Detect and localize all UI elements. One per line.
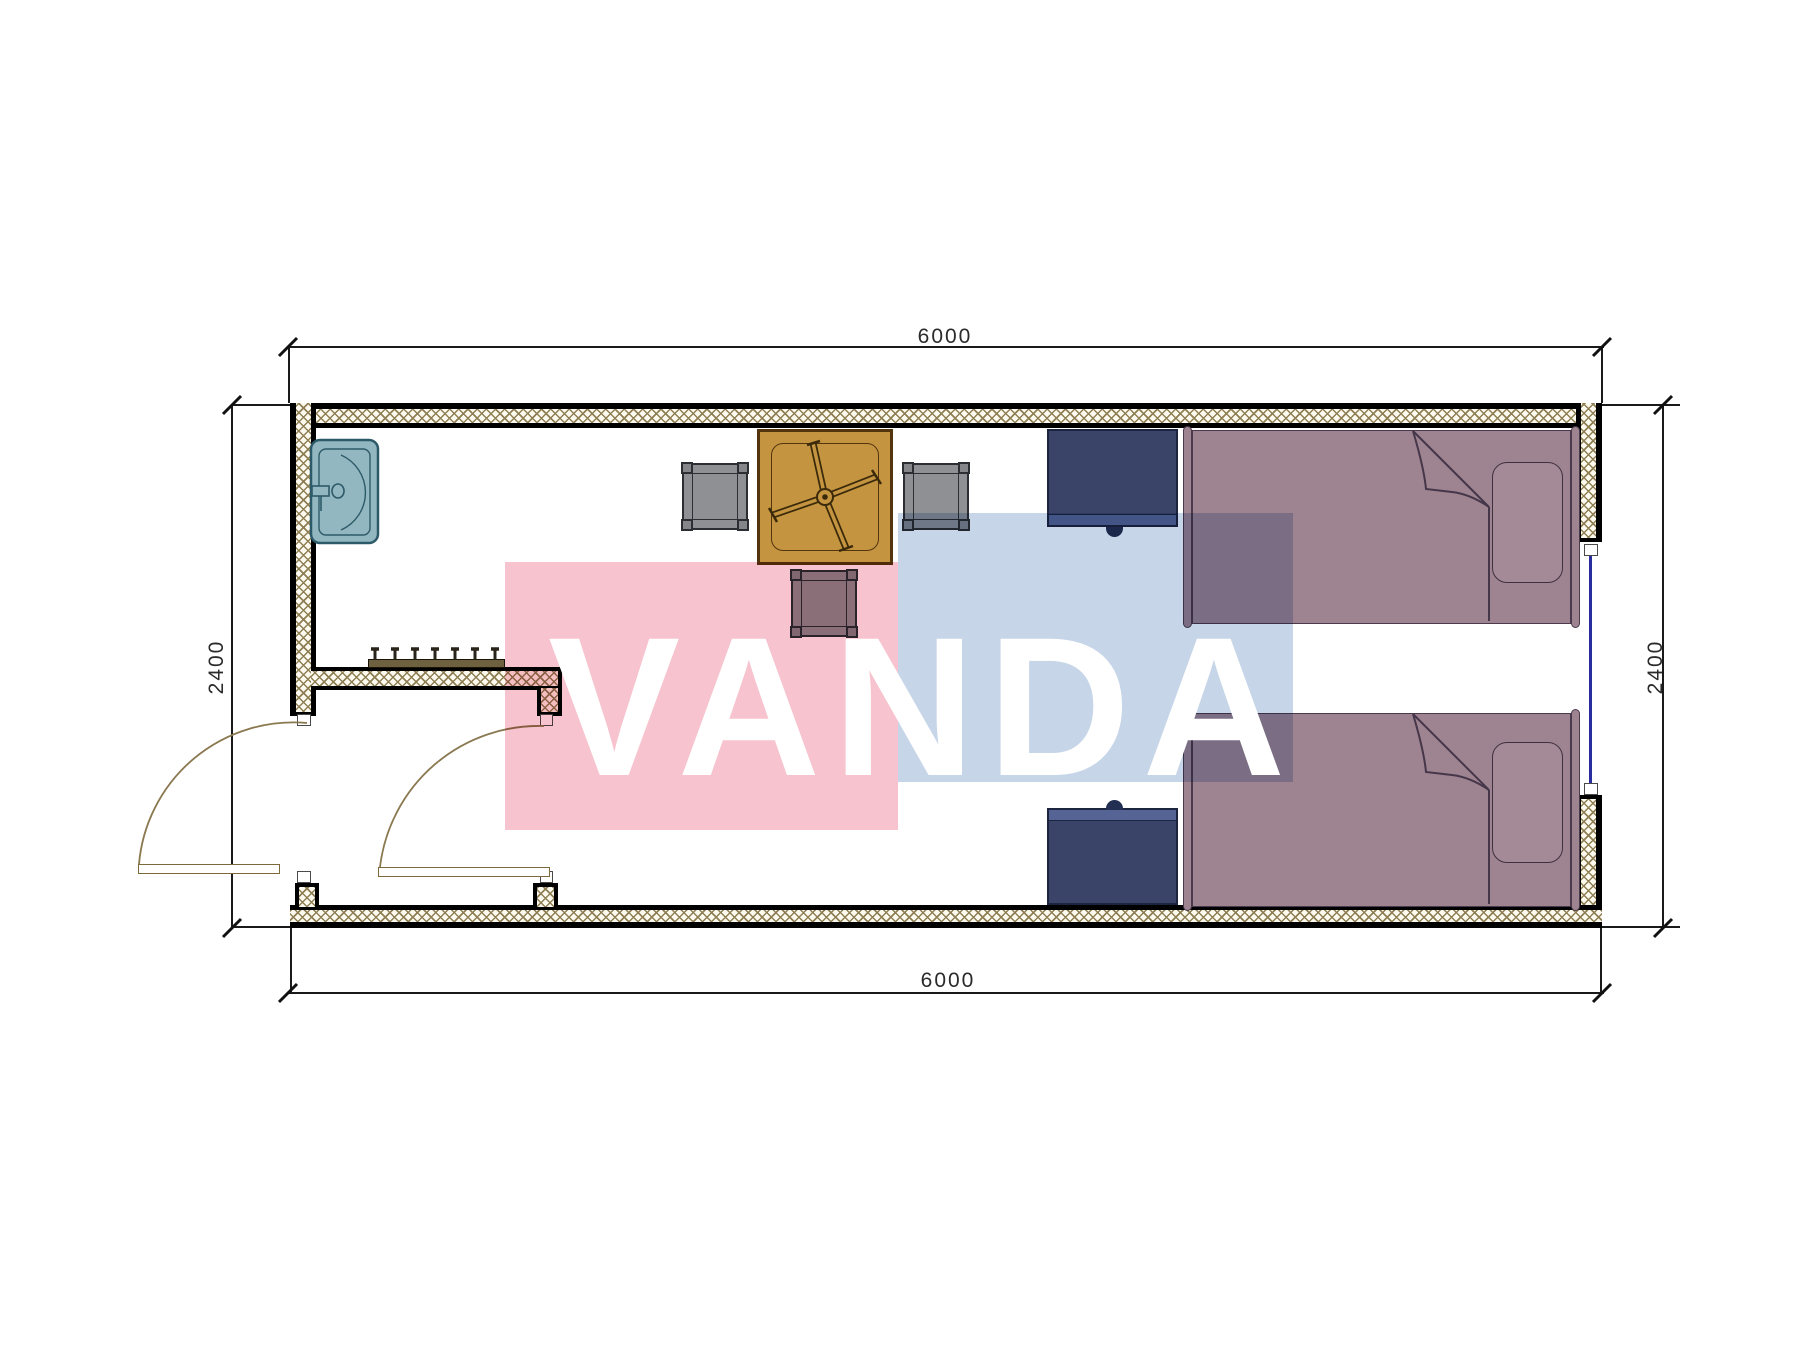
blanket-fold-upper bbox=[1413, 431, 1489, 621]
table-pedestal bbox=[769, 441, 881, 551]
floor-plan-canvas: 6000 6000 2400 2400 bbox=[0, 0, 1800, 1350]
watermark-text: VANDA bbox=[548, 608, 1297, 806]
coat-hooks bbox=[371, 649, 499, 660]
blanket-fold-lower bbox=[1413, 714, 1489, 904]
door-swing-arcs bbox=[139, 722, 544, 867]
sink bbox=[311, 440, 378, 543]
